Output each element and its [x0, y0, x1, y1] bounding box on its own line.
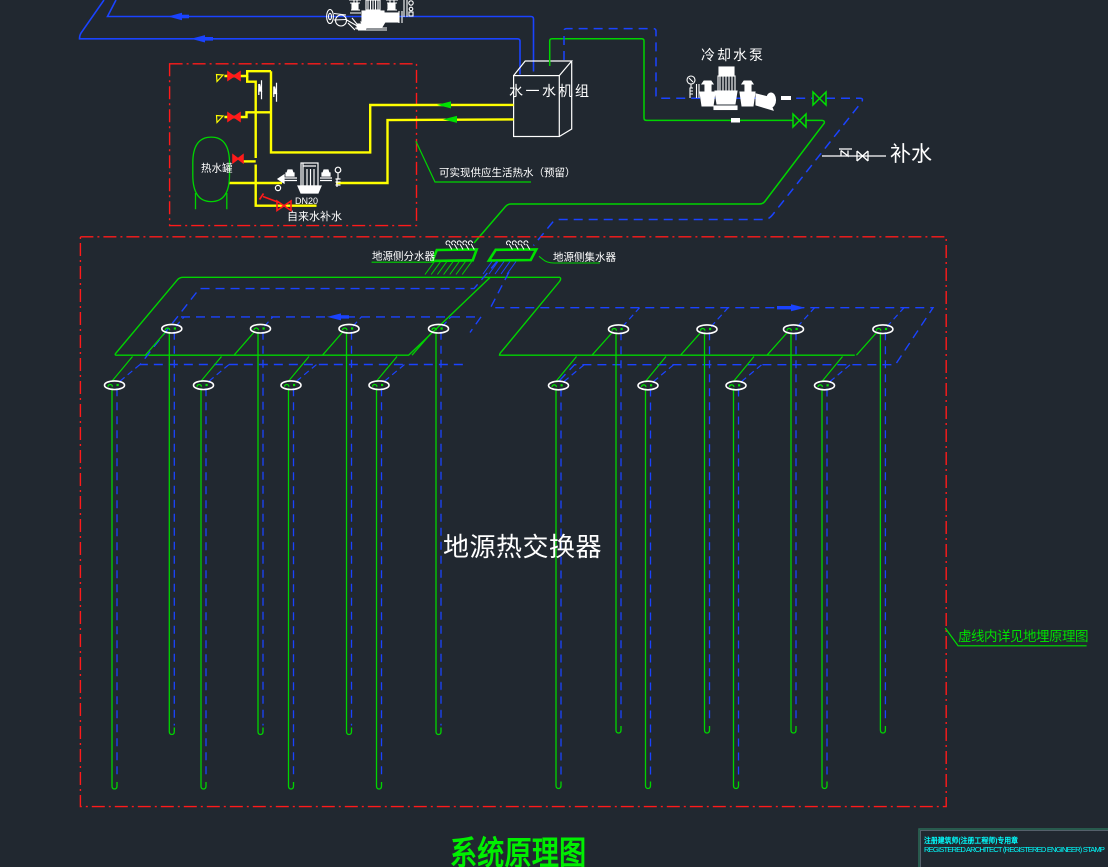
svg-text:地源热交换器: 地源热交换器 — [443, 532, 602, 562]
svg-text:冷却水泵: 冷却水泵 — [701, 47, 765, 63]
svg-text:补水: 补水 — [890, 143, 932, 166]
svg-text:地源侧分水器: 地源侧分水器 — [372, 250, 435, 263]
svg-text:系统原理图: 系统原理图 — [450, 835, 586, 867]
svg-text:自来水补水: 自来水补水 — [287, 210, 342, 223]
svg-text:水一水机组: 水一水机组 — [509, 83, 592, 99]
svg-text:REGISTERED ARCHITECT (REGISTER: REGISTERED ARCHITECT (REGISTERED ENGINEE… — [924, 845, 1105, 854]
svg-text:热水罐: 热水罐 — [201, 162, 233, 175]
svg-text:注册建筑师(注册工程师)专用章: 注册建筑师(注册工程师)专用章 — [924, 835, 1018, 845]
svg-text:DN20: DN20 — [295, 196, 318, 206]
svg-text:虚线内详见地埋原理图: 虚线内详见地埋原理图 — [958, 629, 1088, 644]
svg-text:地源侧集水器: 地源侧集水器 — [553, 251, 616, 264]
svg-text:可实现供应生活热水（预留）: 可实现供应生活热水（预留） — [439, 166, 576, 179]
